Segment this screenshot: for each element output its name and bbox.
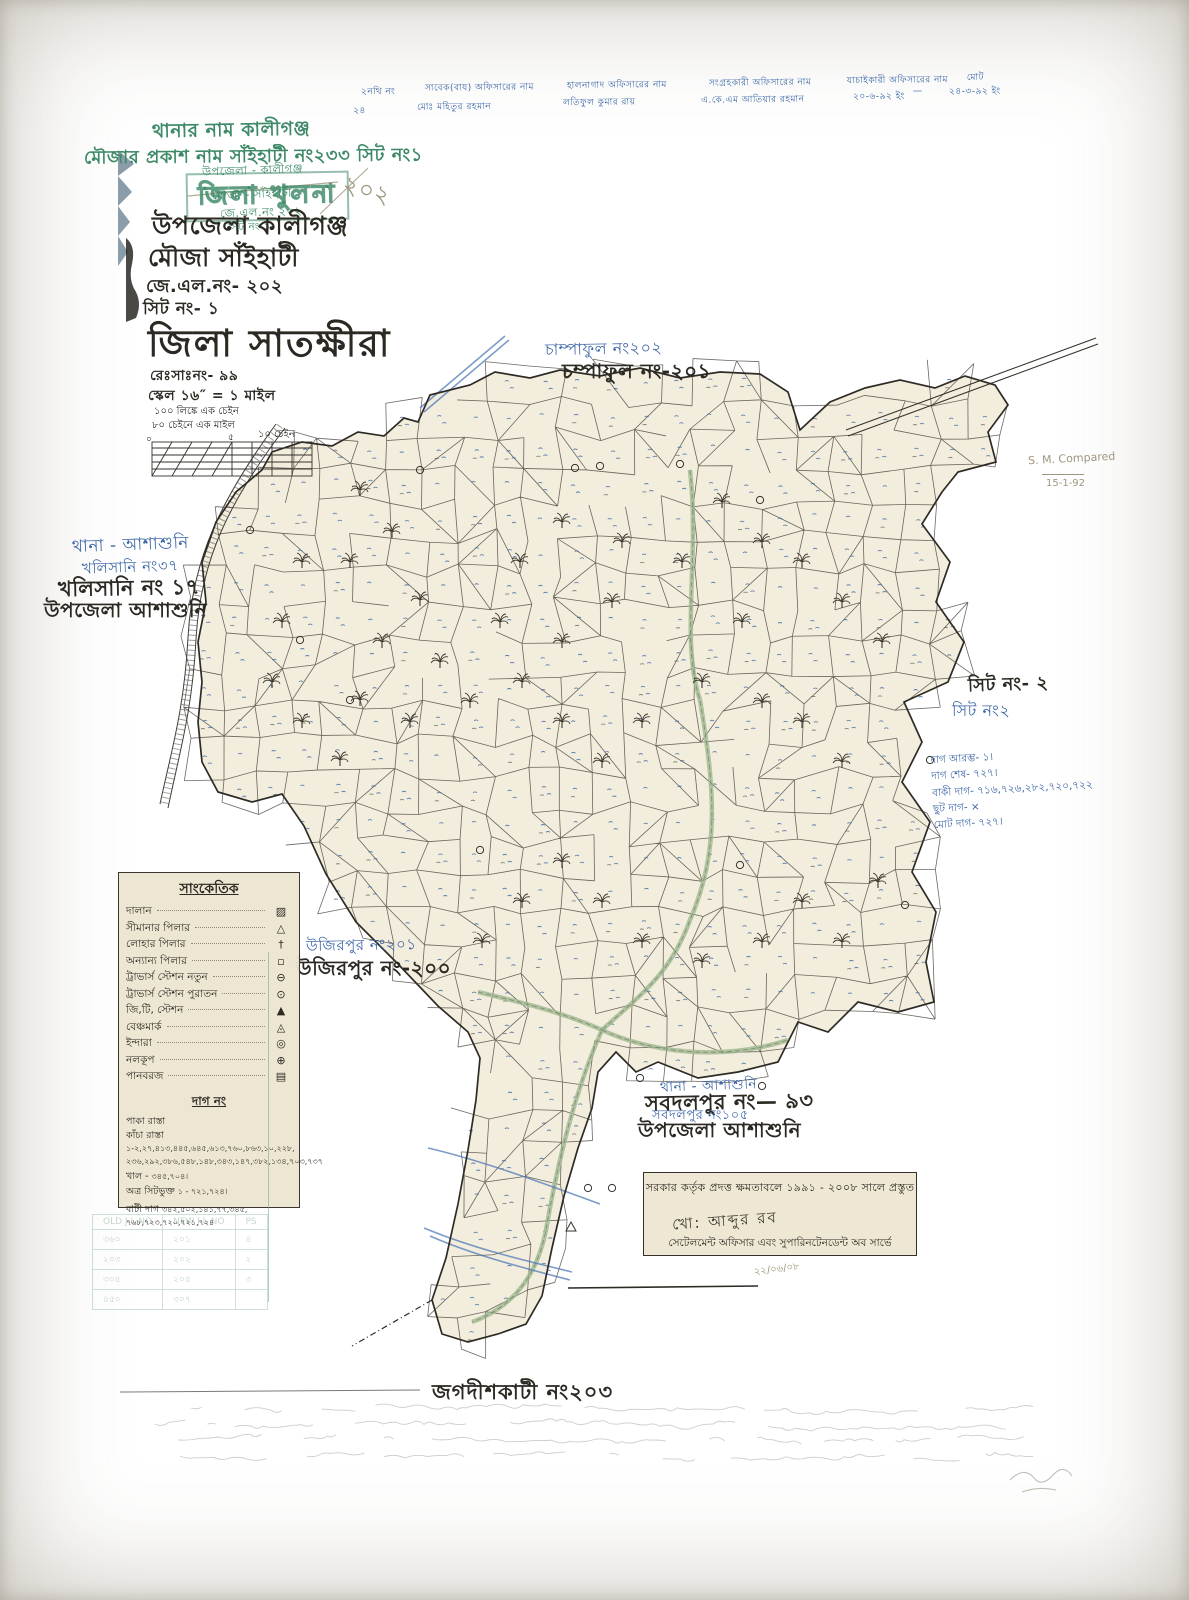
dag-label: অত্র সিটভুক্ত <box>126 1186 175 1197</box>
jl-cell: ৩ <box>235 1270 267 1290</box>
neighbor-south-upazila: উপজেলা আশাশুনি <box>638 1116 801 1149</box>
register-header-total: মোট <box>967 70 984 85</box>
register-date-1: ২০-৬-৯২ ইং <box>853 89 905 105</box>
dag-value: ১-২,২৭,৪১৩,৪৪৫,৬৪৫,৬১৩,৭৬০,৮৬৩,১০,২২৮, ২… <box>126 1144 323 1166</box>
diagonal-scale-bar <box>150 440 320 480</box>
dag-value: ১ - ৭২১,৭২৪। <box>178 1187 228 1196</box>
legend-label: ইন্দারা <box>126 1036 152 1052</box>
legend-label: পানবরজ <box>126 1069 163 1085</box>
gt-station-icon: ▲ <box>270 1003 292 1020</box>
legend-label: অন্যান্য পিলার <box>126 954 187 970</box>
pencil-signature-squiggle <box>1042 468 1084 475</box>
register-header-serial: ২নথি নং <box>361 84 395 99</box>
benchmark-icon: ◬ <box>270 1020 292 1037</box>
jl-cell: ৩০৭ <box>163 1290 235 1310</box>
jl-cell: ২ <box>235 1250 267 1270</box>
register-dash: — <box>913 86 923 96</box>
register-header-verifier: যাচাইকারী অফিসারের নাম <box>847 72 948 88</box>
scanned-cadastral-map-page: { "header": { "thana_green": "থানার নাম … <box>0 0 1189 1600</box>
jl-table-row: ৩০৪২০৫৩ <box>93 1270 268 1290</box>
plot-count-notes: দাগ আরম্ভ- ১। দাগ শেষ- ৭২৭। বাকী দাগ- ৭১… <box>930 744 1095 834</box>
dag-label: পাকা রাস্তা <box>126 1116 165 1127</box>
scale-note-2: ৮০ চেইনে এক মাইল <box>152 418 235 435</box>
other-pillar-icon: ▫ <box>270 954 292 971</box>
iron-pillar-icon: † <box>270 937 292 954</box>
jl-table-row: ৩৬০২০১৪ <box>93 1230 268 1250</box>
jl-cell: ২০৫ <box>163 1270 235 1290</box>
well-icon: ◎ <box>270 1036 292 1053</box>
legend-row-building: দালান▨ <box>126 904 292 921</box>
register-date-2: ২৪-৩-৯২ ইং <box>949 84 1001 100</box>
building-icon: ▨ <box>270 904 292 921</box>
jl-table-row: ৪৫০৩০৭ <box>93 1290 268 1310</box>
certificate-box: সরকার কর্তৃক প্রদত্ত ক্ষমতাবলে ১৯৯১ - ২০… <box>643 1172 917 1256</box>
pencil-compared-date: 15-1-92 <box>1046 478 1085 489</box>
jl-table-row: ২০৩২০২২ <box>93 1250 268 1270</box>
legend-label: ট্রাভার্স স্টেশন পুরাতন <box>126 987 217 1003</box>
register-collector-value: এ.কে.এম আতিয়ার রহমান <box>701 92 805 108</box>
jl-cell: ৪৫০ <box>93 1290 163 1310</box>
jl-cell: ৩০৪ <box>93 1270 163 1290</box>
certificate-authority-line: সরকার কর্তৃক প্রদত্ত ক্ষমতাবলে ১৯৯১ - ২০… <box>644 1179 916 1198</box>
green-overprint-line <box>268 952 269 1302</box>
neighbor-ujirpur-black: উজিরপুর নং-২০০ <box>296 954 451 987</box>
traverse-station-new-icon: ⊖ <box>270 970 292 987</box>
legend-label: জি,টি, স্টেশন <box>126 1003 183 1019</box>
betel-garden-icon: ▤ <box>270 1069 292 1086</box>
tubewell-icon: ⊕ <box>270 1053 292 1070</box>
sheet-2-blue: সিট নং২ <box>952 698 1010 725</box>
boundary-pillar-icon: △ <box>270 921 292 938</box>
dag-value: ৩৪৫,৭০৪। <box>152 1172 189 1181</box>
legend-label: সীমানার পিলার <box>126 921 190 937</box>
legend-label: লোহার পিলার <box>126 937 186 953</box>
jl-cell: ২০১ <box>163 1230 235 1250</box>
jl-cell: ৩৬০ <box>93 1230 163 1250</box>
legend-row-boundary-pillar: সীমানার পিলার△ <box>126 921 292 938</box>
register-header-collector: সংগ্রহকারী অফিসারের নাম <box>709 75 812 91</box>
traverse-station-old-icon: ⊙ <box>270 987 292 1004</box>
neighbor-west-upazila: উপজেলা আশাশুনি <box>44 596 207 629</box>
legend-label: দালান <box>126 904 152 920</box>
legend-title: সাংকেতিক <box>126 877 292 901</box>
register-prev-officer-value: মোঃ মহিতুর রহমান <box>417 99 491 115</box>
jl-cell: ২০৩ <box>93 1250 163 1270</box>
dag-label: বাটী দাগ <box>126 1204 159 1215</box>
register-serial-value: ২৪ <box>353 103 366 118</box>
legend-label: বেঞ্চমার্ক <box>126 1020 162 1036</box>
jl-cell: ২০২ <box>163 1250 235 1270</box>
neighbor-jagadishkati: জগদীশকাটী নং২০৩ <box>432 1376 613 1411</box>
dag-label: খাল <box>126 1171 142 1182</box>
certificate-officer-line: সেটেলমেন্ট অফিসার এবং সুপারিনটেনডেন্ট অব… <box>644 1236 916 1253</box>
register-current-officer-value: লতিফুল কুমার রায় <box>563 94 635 110</box>
register-header-current-officer: হালনাগাদ অফিসারের নাম <box>567 77 667 93</box>
register-header-prev-officer: সাবেক(বায) অফিসারের নাম <box>425 79 534 95</box>
legend-label: নলকূপ <box>126 1053 155 1069</box>
neighbor-champaful-black: চম্পাফুল নং-২০১ <box>562 357 711 390</box>
jl-cell <box>235 1290 267 1310</box>
scale-statement: স্কেল ১৬″ = ১ মাইল <box>148 384 276 408</box>
stamp-upazila-line: উপজেলা - কালীগঞ্জ <box>202 160 304 183</box>
legend-box: সাংকেতিক দালান▨ সীমানার পিলার△ লোহার পিল… <box>118 872 300 1208</box>
certificate-signature: খো: আব্দুর রব <box>671 1197 916 1239</box>
legend-label: ট্রাভার্স স্টেশন নতুন <box>126 970 208 986</box>
dag-label: কাঁচা রাস্তা <box>126 1130 164 1141</box>
jl-cell: ৪ <box>235 1230 267 1250</box>
